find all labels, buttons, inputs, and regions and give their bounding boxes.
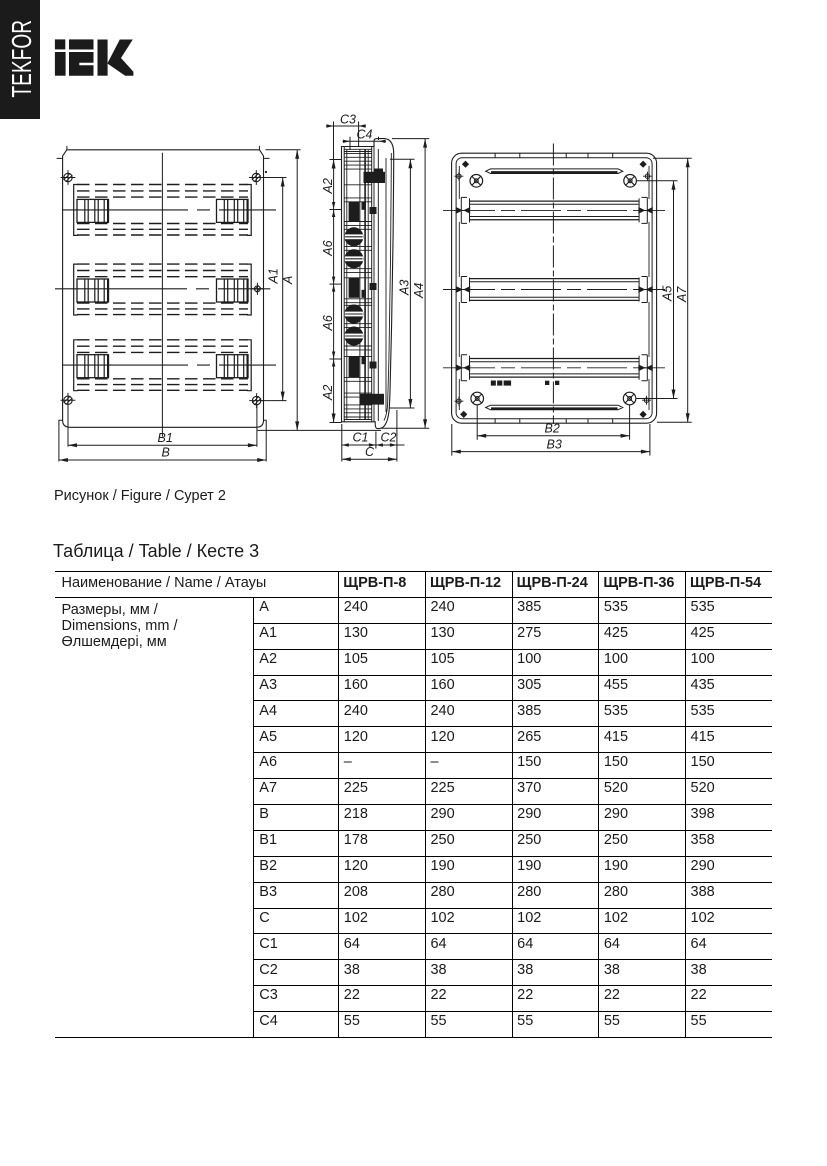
svg-text:B2: B2 bbox=[545, 422, 560, 436]
svg-text:B1: B1 bbox=[158, 431, 173, 445]
svg-text:C4: C4 bbox=[357, 128, 373, 142]
svg-text:A7: A7 bbox=[675, 286, 689, 303]
svg-text:A4: A4 bbox=[412, 283, 426, 299]
svg-text:B3: B3 bbox=[547, 437, 562, 451]
svg-text:A5: A5 bbox=[661, 286, 675, 302]
svg-text:TEKFOR: TEKFOR bbox=[6, 20, 37, 98]
svg-text:A6: A6 bbox=[321, 240, 335, 256]
svg-text:A2: A2 bbox=[321, 385, 335, 401]
svg-text:A3: A3 bbox=[398, 280, 412, 296]
svg-text:C2: C2 bbox=[381, 431, 397, 445]
svg-text:C1: C1 bbox=[353, 431, 369, 445]
svg-text:C3: C3 bbox=[340, 112, 356, 126]
svg-text:A: A bbox=[281, 276, 295, 285]
svg-text:A2: A2 bbox=[321, 178, 335, 194]
svg-text:A6: A6 bbox=[321, 315, 335, 331]
svg-text:C: C bbox=[365, 445, 375, 459]
svg-text:A1: A1 bbox=[267, 268, 281, 284]
svg-text:B: B bbox=[162, 446, 170, 460]
